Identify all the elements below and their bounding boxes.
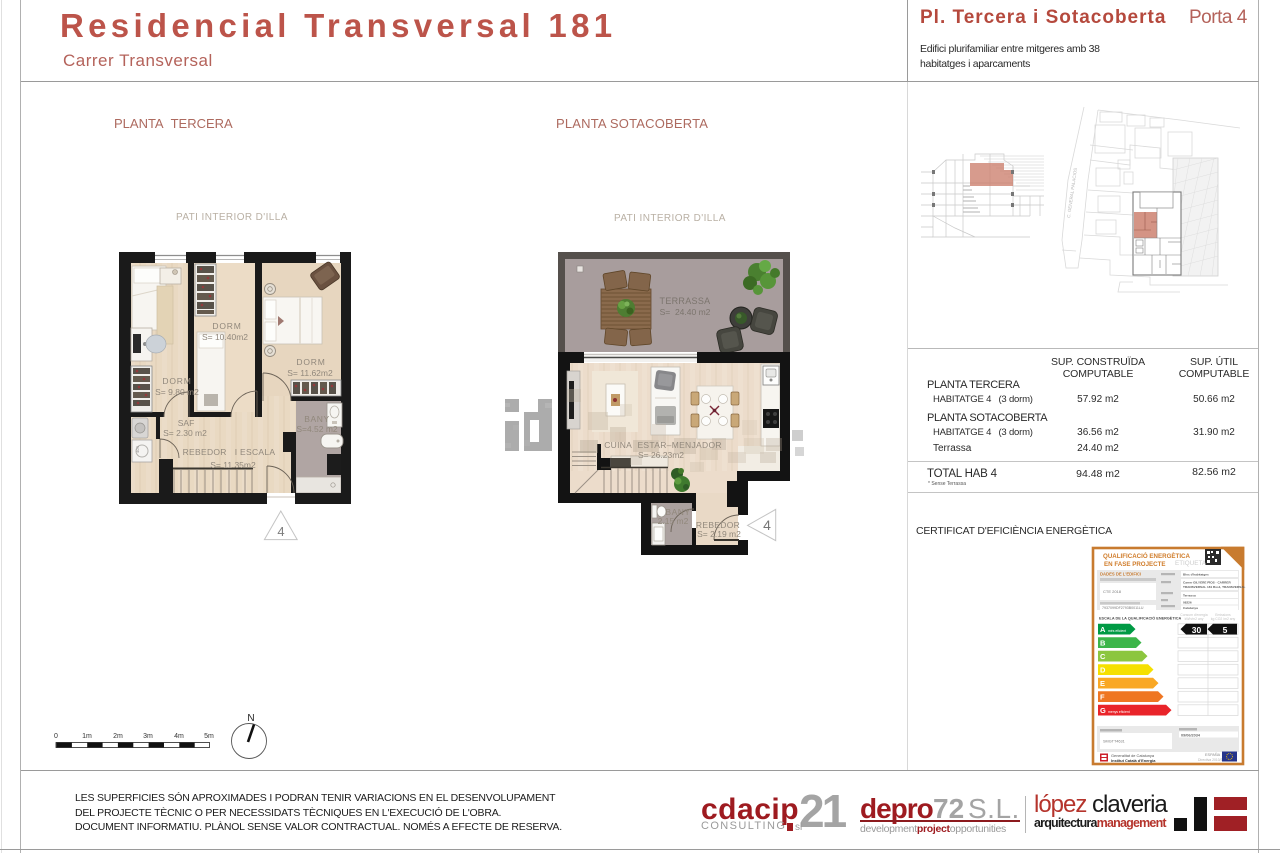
svg-text:S= 2.19 m2: S= 2.19 m2 — [697, 529, 741, 539]
svg-text:S=4.52 m2: S=4.52 m2 — [296, 424, 338, 434]
svg-text:4m: 4m — [174, 733, 184, 740]
svg-text:F: F — [1100, 692, 1105, 701]
svg-text:S= 11.35m2: S= 11.35m2 — [210, 460, 256, 470]
svg-text:C: C — [1100, 652, 1106, 661]
svg-text:S= 11.62m2: S= 11.62m2 — [287, 368, 333, 378]
svg-text:CUINA ESTAR–MENJADOR: CUINA ESTAR–MENJADOR — [604, 440, 722, 450]
svg-text:40S: 40S — [135, 446, 140, 453]
svg-text:A: A — [1100, 625, 1106, 634]
svg-text:3m: 3m — [143, 733, 153, 740]
svg-text:09/06/2034: 09/06/2034 — [1181, 734, 1201, 738]
svg-text:REBEDOR I ESCALA: REBEDOR I ESCALA — [183, 447, 276, 457]
svg-text:ETIQUETA: ETIQUETA — [1175, 560, 1207, 567]
svg-text:S= 26.23m2: S= 26.23m2 — [638, 450, 684, 460]
svg-text:CTE 2018: CTE 2018 — [1103, 589, 1122, 594]
svg-text:TERRASSA: TERRASSA — [660, 296, 711, 306]
svg-text:Bloc d'habitatges: Bloc d'habitatges — [1183, 573, 1209, 577]
svg-text:menys eficient: menys eficient — [1108, 710, 1130, 714]
svg-text:E: E — [1100, 679, 1105, 688]
svg-text:ESPAÑA: ESPAÑA — [1205, 752, 1221, 757]
svg-text:EN FASE PROJECTE: EN FASE PROJECTE — [1104, 561, 1166, 568]
svg-text:7937099DF2793B0011LU: 7937099DF2793B0011LU — [1102, 606, 1144, 610]
svg-text:TRANSVERSAL 181 Bxs1, TRANSVER: TRANSVERSAL 181 Bxs1, TRANSVERSAL — [1183, 585, 1245, 589]
svg-text:08226: 08226 — [1183, 601, 1192, 605]
svg-text:2.15 m2: 2.15 m2 — [658, 516, 689, 526]
svg-text:QUALIFICACIÓ ENERGÈTICA: QUALIFICACIÓ ENERGÈTICA — [1103, 552, 1191, 560]
svg-text:S= 9.80 m2: S= 9.80 m2 — [155, 387, 199, 397]
svg-text:0: 0 — [54, 733, 58, 740]
svg-text:SMGTT4631: SMGTT4631 — [1103, 740, 1125, 744]
svg-text:2m: 2m — [113, 733, 123, 740]
svg-text:Catalunya: Catalunya — [1183, 606, 1198, 610]
svg-text:S= 24.40 m2: S= 24.40 m2 — [660, 307, 711, 317]
svg-text:D: D — [1100, 665, 1106, 674]
svg-text:DORM: DORM — [296, 357, 325, 367]
svg-text:B: B — [1100, 638, 1106, 647]
svg-text:5: 5 — [1223, 625, 1228, 635]
svg-text:30: 30 — [1192, 625, 1202, 635]
svg-text:SAF: SAF — [178, 418, 195, 428]
svg-text:S= 10.40m2: S= 10.40m2 — [202, 332, 248, 342]
svg-text:kWh/m2 any: kWh/m2 any — [1185, 617, 1204, 621]
svg-text:1m: 1m — [82, 733, 92, 740]
svg-text:Carrer GILYERE PÍOS - CARRER: Carrer GILYERE PÍOS - CARRER — [1183, 580, 1231, 585]
svg-text:5m: 5m — [204, 733, 214, 740]
svg-text:més eficient: més eficient — [1108, 629, 1126, 633]
svg-text:G: G — [1100, 706, 1106, 715]
svg-text:DADES DE L'EDIFICI: DADES DE L'EDIFICI — [1100, 572, 1141, 577]
svg-text:DORM: DORM — [162, 376, 191, 386]
svg-text:Terrassa: Terrassa — [1183, 594, 1196, 598]
svg-text:C. GENERAL PALACIOS: C. GENERAL PALACIOS — [1066, 167, 1078, 218]
svg-text:ESCALA DE LA QUALIFICACIÓ ENER: ESCALA DE LA QUALIFICACIÓ ENERGÈTICA — [1099, 616, 1181, 621]
svg-text:4: 4 — [763, 517, 771, 533]
svg-text:S= 2.30 m2: S= 2.30 m2 — [163, 428, 207, 438]
svg-text:DORM: DORM — [212, 321, 241, 331]
svg-text:BANY: BANY — [304, 414, 330, 424]
svg-text:4: 4 — [277, 524, 284, 539]
svg-text:N: N — [247, 713, 254, 724]
svg-text:kg CO2 /m2 any: kg CO2 /m2 any — [1211, 617, 1236, 621]
svg-text:Institut Català d'Energia: Institut Català d'Energia — [1111, 758, 1156, 763]
